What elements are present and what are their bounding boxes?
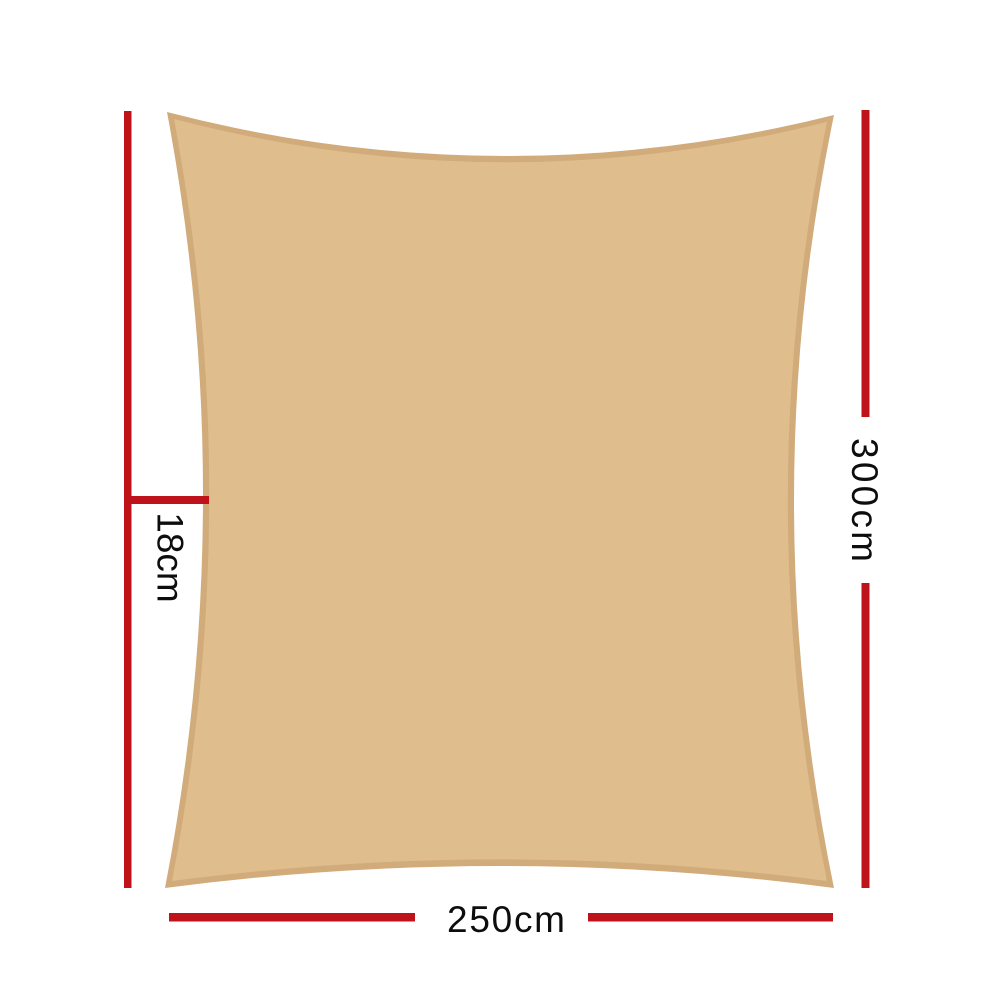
svg-text:18cm: 18cm	[150, 512, 191, 602]
svg-text:300cm: 300cm	[844, 438, 885, 562]
svg-text:250cm: 250cm	[447, 899, 565, 940]
